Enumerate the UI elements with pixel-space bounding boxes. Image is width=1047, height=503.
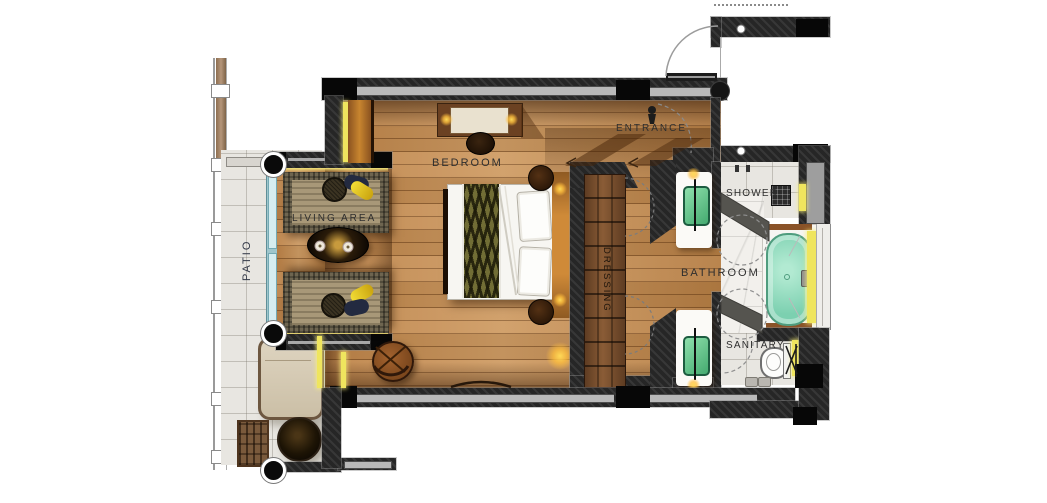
cove-light-strip [317,336,322,388]
bed-runner [462,184,501,298]
round-patio-table [277,417,322,462]
dressing-partition-wall [570,162,585,390]
chaise-cushion-line [265,360,311,361]
shower-window-strip [799,184,806,211]
headboard-lamp-glow [553,182,567,196]
wardrobe-divider [597,175,599,387]
room-label-dressing: DRESSING [601,247,612,313]
left-upper-wall [325,96,343,164]
vanity-faucet [694,328,696,380]
wall-column-block [795,364,823,388]
marble-partition-wall [712,162,721,248]
wall-block [371,152,392,168]
glass-door-knob-bottom [261,321,286,346]
bed-pillow [517,246,553,297]
tub-wood-bar [766,224,812,230]
side-tray-table [321,293,346,318]
glass-door-knob-top [261,152,286,177]
wall-column-block [793,407,817,425]
vanity-top [676,172,712,248]
nook-bottom-wall [276,334,392,350]
left-lower-wall [322,388,341,468]
marble-partition-wall [712,292,721,390]
exterior-step-glazing [344,461,392,469]
vanity-sink [683,336,710,376]
room-label-entrance: ENTRANCE [616,123,687,134]
room-label-bedroom: BEDROOM [432,157,503,169]
room-label-patio: PATIO [241,240,253,281]
vanity-light-glow [686,168,701,180]
vanity-bottom [676,310,712,386]
bed-foot-bench [443,189,448,294]
patio-wall-knob [261,458,286,483]
top-wall-glazing [356,86,616,96]
headboard-lamp-glow [553,293,567,307]
cove-light-strip [341,352,346,388]
bath-mat [758,377,771,387]
vanity-faucet [694,179,696,231]
nightstand [528,299,554,325]
desk-top-pad [450,107,509,134]
bed-pillow [516,190,552,242]
wall-column-block [796,19,828,37]
sofa-bottom [283,272,389,333]
glass-panel [268,171,277,249]
bottom-wall-glazing [356,394,614,403]
floor-plan: PATIO LIVING AREA BEDROOM ENTRANCE DRESS… [0,0,1047,503]
glass-panel [268,253,277,331]
vestibule-jamb-line [720,37,721,78]
door-leaf-glazing [668,76,715,78]
room-label-shower: SHOWER [726,188,778,199]
slat-chair [237,420,269,467]
barrel-armchair [372,341,414,382]
hall-dotted-line [714,4,788,6]
desk-stool [466,132,495,155]
shower-wall-panel [806,162,825,224]
shower-fixture-mark [735,165,739,172]
bath-mat [745,377,758,387]
desk-lamp-glow [440,113,453,126]
balcony-railing-line [213,58,215,470]
top-wall-glazing [650,87,713,97]
shower-fixture-mark [746,165,750,172]
room-label-living-area: LIVING AREA [292,213,376,224]
toilet-seat-line [766,353,781,371]
oval-coffee-table [307,227,369,263]
wall-column-block [616,386,650,408]
wall-glazing [288,341,370,344]
railing-post [211,84,230,98]
tub-ledge [816,224,831,330]
nightstand [528,165,554,191]
entrance-door-leaf [666,73,717,81]
wall-column-block [616,80,650,100]
room-label-sanitary: SANITARY [726,340,785,351]
vanity-sink [683,186,710,226]
room-label-bathroom: BATHROOM [681,267,760,279]
desk-lamp-glow [505,113,518,126]
ledge-line [822,228,823,326]
tall-cabinet [348,100,374,163]
tub-window-strip [807,231,816,323]
